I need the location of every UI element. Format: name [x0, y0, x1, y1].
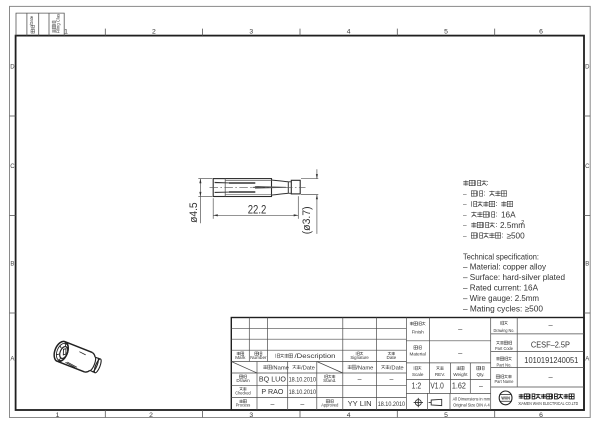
svg-text:– Surface: hard-silver plated: – Surface: hard-silver plated: [463, 272, 565, 282]
svg-text:1: 1: [56, 412, 60, 419]
svg-text:CESF–2.5P: CESF–2.5P: [531, 339, 570, 349]
svg-text:2: 2: [521, 220, 524, 226]
svg-text:Signature: Signature: [350, 355, 369, 360]
svg-text::: :: [487, 178, 489, 187]
svg-text:2: 2: [149, 412, 153, 419]
svg-text:– Wire gauge: 2.5mm: – Wire gauge: 2.5mm: [463, 293, 539, 303]
svg-text:1010191240051: 1010191240051: [524, 355, 578, 365]
svg-text:/Name: /Name: [356, 365, 373, 371]
svg-text:–: –: [358, 376, 362, 383]
svg-text:≥500: ≥500: [507, 231, 526, 240]
svg-text:Qty.: Qty.: [476, 372, 484, 377]
svg-text:Process: Process: [236, 403, 251, 408]
svg-text:– Material: copper alloy: – Material: copper alloy: [463, 262, 547, 272]
svg-text:/Date: /Date: [29, 15, 34, 26]
svg-text:D: D: [10, 65, 15, 71]
svg-text:–: –: [463, 212, 467, 219]
svg-text:/Description: /Description: [295, 354, 336, 360]
svg-text:3: 3: [249, 29, 253, 36]
svg-text:1.62: 1.62: [452, 380, 466, 390]
svg-text:A: A: [10, 357, 14, 363]
svg-text:(ø3.7): (ø3.7): [301, 206, 313, 234]
svg-text:–: –: [463, 202, 467, 209]
svg-text:Stand.: Stand.: [323, 378, 336, 383]
svg-text:V1.0: V1.0: [430, 380, 444, 390]
svg-text::: :: [483, 189, 485, 198]
svg-text:–: –: [463, 191, 467, 198]
svg-text::: :: [495, 210, 497, 219]
svg-text:– Rated current: 16A: – Rated current: 16A: [463, 283, 538, 293]
svg-text:Finish: Finish: [412, 329, 425, 334]
svg-text:WXN: WXN: [501, 396, 510, 401]
svg-text:–: –: [479, 383, 483, 390]
svg-text::: :: [502, 231, 504, 240]
svg-text:Mark: Mark: [235, 355, 246, 360]
svg-text:ø4.5: ø4.5: [188, 202, 200, 223]
svg-text:–: –: [463, 233, 467, 240]
svg-text:Drawing No.: Drawing No.: [494, 328, 515, 333]
svg-text:B: B: [10, 262, 14, 268]
svg-text:3: 3: [249, 412, 253, 419]
svg-text:Number: Number: [250, 355, 267, 360]
svg-text:–: –: [389, 376, 393, 383]
svg-text:/Name: /Name: [272, 365, 289, 371]
svg-text:BQ LUO: BQ LUO: [259, 375, 286, 384]
svg-text:P RAO: P RAO: [261, 387, 283, 396]
svg-text:–: –: [300, 401, 304, 408]
svg-text:18.10.2010: 18.10.2010: [289, 389, 317, 396]
svg-text:22.2: 22.2: [248, 202, 267, 216]
svg-text:/Date: /Date: [301, 365, 315, 371]
svg-text::: :: [495, 199, 497, 208]
svg-text:Drawn: Drawn: [236, 378, 250, 383]
svg-text::: :: [495, 220, 497, 229]
svg-text:C: C: [585, 164, 590, 170]
svg-text:Part No.: Part No.: [497, 362, 512, 367]
svg-text:– Mating cycles: ≥500: – Mating cycles: ≥500: [463, 303, 543, 313]
svg-text:B: B: [585, 262, 589, 268]
svg-text:REV.: REV.: [435, 372, 445, 377]
svg-text:Checked: Checked: [235, 390, 251, 395]
svg-text:2: 2: [152, 29, 156, 36]
svg-text:Scale: Scale: [412, 372, 424, 377]
svg-text:Part Name: Part Name: [495, 379, 514, 384]
svg-text:–: –: [270, 401, 274, 408]
svg-text:6: 6: [539, 29, 543, 36]
svg-text:16A: 16A: [501, 210, 516, 219]
svg-text:4: 4: [347, 29, 351, 36]
svg-text:6: 6: [539, 412, 543, 419]
svg-text:Part Code: Part Code: [495, 346, 513, 351]
svg-text:All Dimensions in mm: All Dimensions in mm: [453, 397, 491, 402]
svg-text:C: C: [10, 164, 15, 170]
svg-text:4: 4: [347, 412, 351, 419]
svg-text:5: 5: [444, 412, 448, 419]
svg-text:/Date: /Date: [390, 365, 404, 371]
svg-text:Filing Clas: Filing Clas: [56, 14, 61, 34]
svg-text:Technical specification:: Technical specification:: [463, 251, 539, 261]
svg-text:Material: Material: [410, 352, 426, 357]
svg-text:Weight: Weight: [453, 372, 468, 377]
svg-text:XIAMEN WAIN ELECTRICAL CO.LTD: XIAMEN WAIN ELECTRICAL CO.LTD: [518, 401, 578, 406]
svg-text:5: 5: [444, 29, 448, 36]
svg-text:Approved: Approved: [321, 403, 338, 408]
svg-text:Date: Date: [387, 355, 397, 360]
svg-text:18.10.2010: 18.10.2010: [378, 401, 406, 408]
svg-text:A: A: [585, 357, 589, 363]
svg-text:D: D: [585, 65, 590, 71]
svg-text:–: –: [463, 223, 467, 230]
svg-text:YY LIN: YY LIN: [348, 399, 372, 408]
svg-text:1: 1: [64, 29, 68, 36]
svg-text:Original Size DIN A 4: Original Size DIN A 4: [453, 403, 490, 408]
svg-text:18.10.2010: 18.10.2010: [289, 377, 317, 384]
svg-text:1:2: 1:2: [412, 380, 422, 390]
